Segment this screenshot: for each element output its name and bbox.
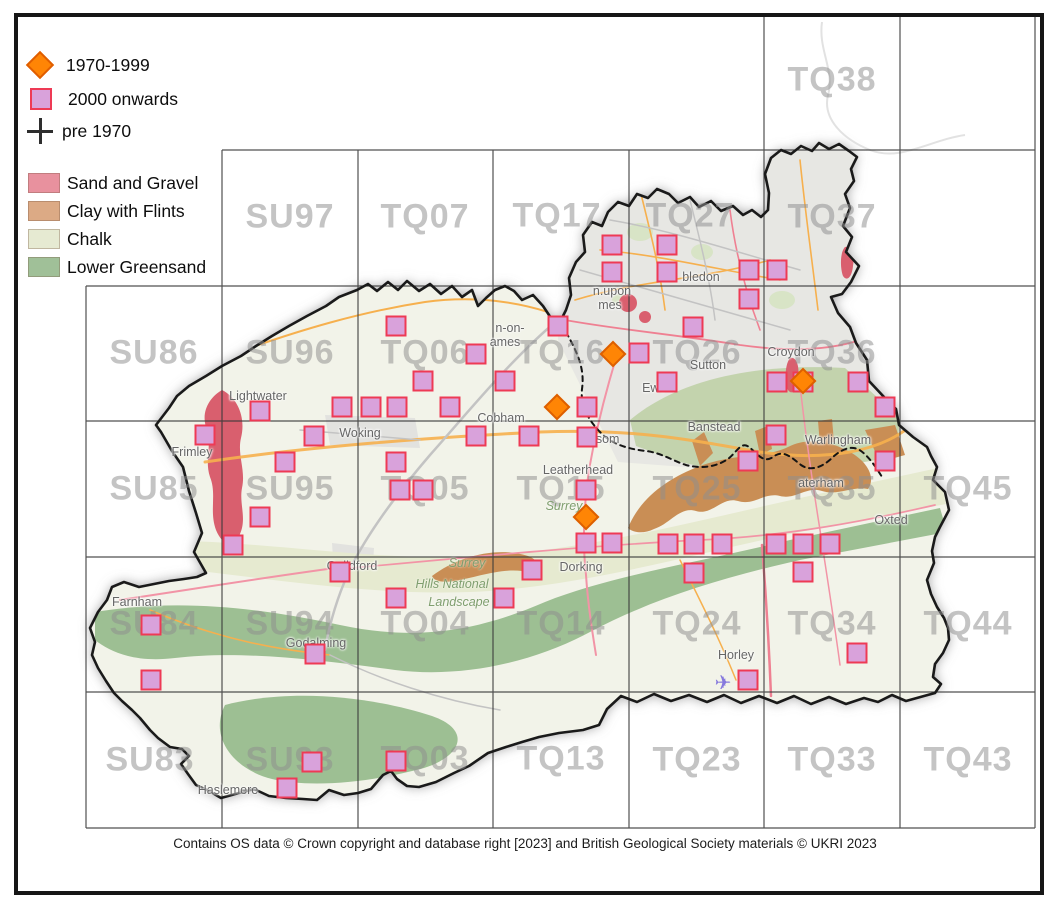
- map-frame-border: [14, 13, 1044, 895]
- map-figure: TQ38SU97TQ07TQ17TQ27TQ37SU86SU96TQ06TQ16…: [0, 0, 1054, 905]
